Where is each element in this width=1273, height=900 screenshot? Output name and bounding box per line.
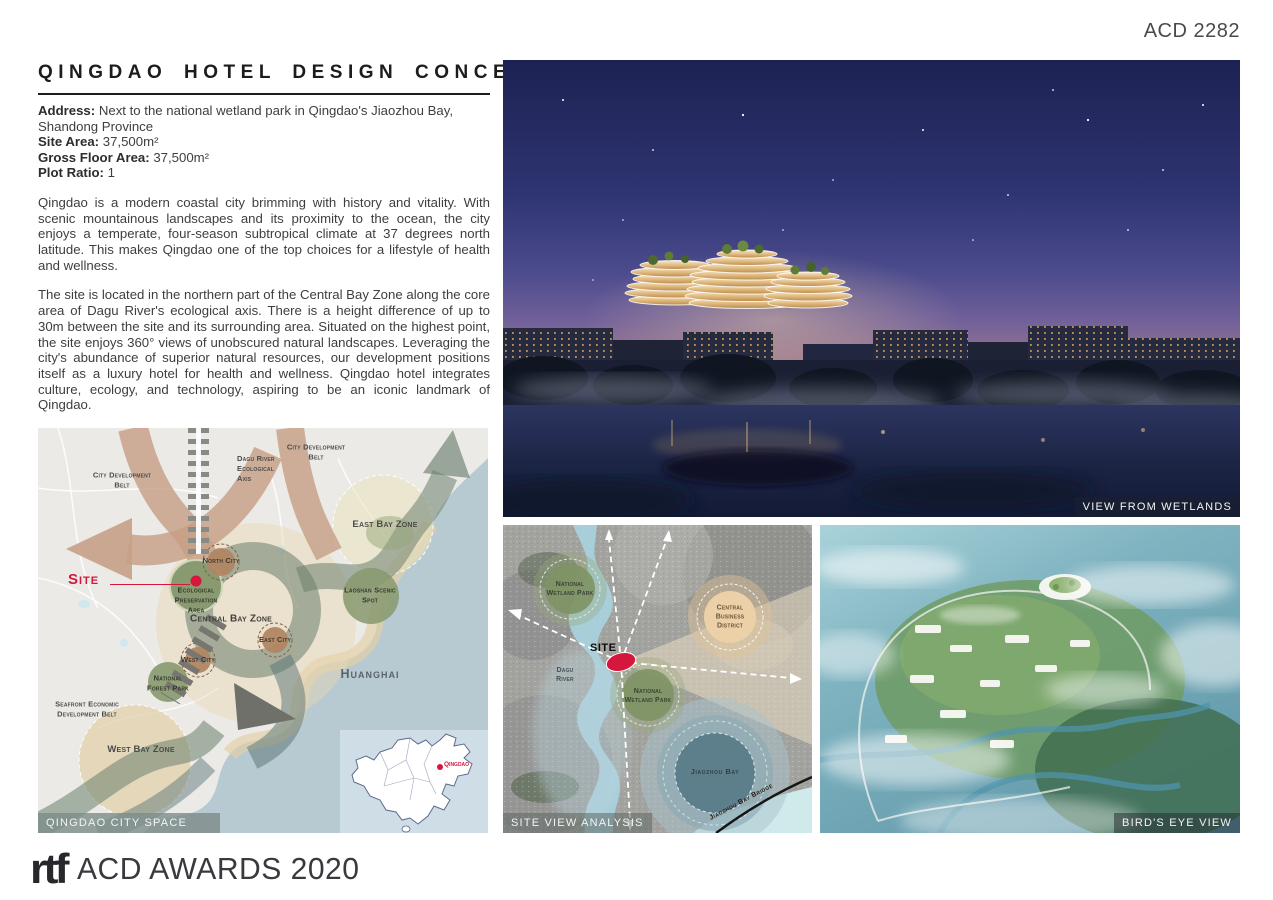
site-map-caption: SITE VIEW ANALYSIS xyxy=(503,813,652,833)
label-eco-preservation-area: Ecological Preservation Area xyxy=(167,585,225,614)
china-outline-map xyxy=(340,730,488,833)
site-area-label: Site Area: xyxy=(38,134,99,149)
birdseye-graphic xyxy=(820,525,1240,833)
award-title: ACD AWARDS 2020 xyxy=(77,851,359,887)
gfa-value: 37,500m² xyxy=(153,150,209,165)
label-dagu-river: Dagu River xyxy=(547,666,583,684)
label-huanghai: Huanghai xyxy=(340,666,399,682)
birdseye-render: BIRD'S EYE VIEW xyxy=(820,525,1240,833)
label-west-city: West City xyxy=(178,655,218,665)
plot-ratio-label: Plot Ratio: xyxy=(38,165,104,180)
competition-board: ACD 2282 QINGDAO HOTEL DESIGN CONCEPT Ad… xyxy=(0,0,1273,900)
page-title: QINGDAO HOTEL DESIGN CONCEPT xyxy=(38,62,490,95)
site-view-analysis-map: National Wetland Park Central Business D… xyxy=(503,525,812,833)
intro-paragraph: Qingdao is a modern coastal city brimmin… xyxy=(38,195,490,274)
label-city-belt-right: City Development Belt xyxy=(285,442,347,462)
label-site-black: SITE xyxy=(590,642,616,654)
address-label: Address: xyxy=(38,103,95,118)
qingdao-dot xyxy=(437,764,443,770)
label-central-bay-zone: Central Bay Zone xyxy=(190,613,272,626)
label-wetland-park-s: National Wetland Park xyxy=(622,687,674,705)
plot-ratio-value: 1 xyxy=(108,165,115,180)
footer: rtf ACD AWARDS 2020 xyxy=(30,846,369,891)
label-cbd: Central Business District xyxy=(703,603,757,630)
china-locator-inset: Qingdao xyxy=(340,730,488,833)
label-seafront-belt: Seafront Economic Development Belt xyxy=(54,699,120,719)
label-dagu-axis: Dagu River Ecological Axis xyxy=(237,454,283,483)
left-column: QINGDAO HOTEL DESIGN CONCEPT Address: Ne… xyxy=(38,62,490,413)
label-west-bay-zone: West Bay Zone xyxy=(107,744,174,756)
site-area-value: 37,500m² xyxy=(103,134,159,149)
hero-caption: VIEW FROM WETLANDS xyxy=(1075,497,1240,517)
info-plot-ratio: Plot Ratio: 1 xyxy=(38,165,490,181)
label-north-city: North City xyxy=(201,556,241,566)
info-gfa: Gross Floor Area: 37,500m² xyxy=(38,150,490,166)
label-jiaozhou-bay: Jiaozhou Bay xyxy=(691,767,739,777)
label-qingdao: Qingdao xyxy=(444,761,469,768)
dagu-axis-ladder xyxy=(188,428,209,554)
gfa-label: Gross Floor Area: xyxy=(38,150,150,165)
label-east-city: East City xyxy=(255,635,295,645)
info-address: Address: Next to the national wetland pa… xyxy=(38,103,490,134)
label-national-forest-park: National Forest Park xyxy=(145,673,191,693)
label-laoshan-scenic-spot: Laoshan Scenic Spot xyxy=(341,585,399,605)
site-paragraph: The site is located in the northern part… xyxy=(38,287,490,413)
label-east-bay-zone: East Bay Zone xyxy=(352,519,417,531)
project-info: Address: Next to the national wetland pa… xyxy=(38,103,490,181)
city-space-planning-map: Dagu River Ecological Axis City Developm… xyxy=(38,428,488,833)
address-value: Next to the national wetland park in Qin… xyxy=(38,103,453,134)
info-site-area: Site Area: 37,500m² xyxy=(38,134,490,150)
label-city-belt-left: City Development Belt xyxy=(91,470,153,490)
board-id: ACD 2282 xyxy=(1144,20,1240,43)
label-site: Site xyxy=(68,571,99,588)
hero-night-render: VIEW FROM WETLANDS xyxy=(503,60,1240,517)
rtf-logo: rtf xyxy=(30,848,65,889)
label-wetland-park-nw: National Wetland Park xyxy=(544,580,596,598)
birdseye-caption: BIRD'S EYE VIEW xyxy=(1114,813,1240,833)
night-scene-graphic xyxy=(503,60,1240,517)
city-map-caption: QINGDAO CITY SPACE PLANNING xyxy=(38,813,220,833)
